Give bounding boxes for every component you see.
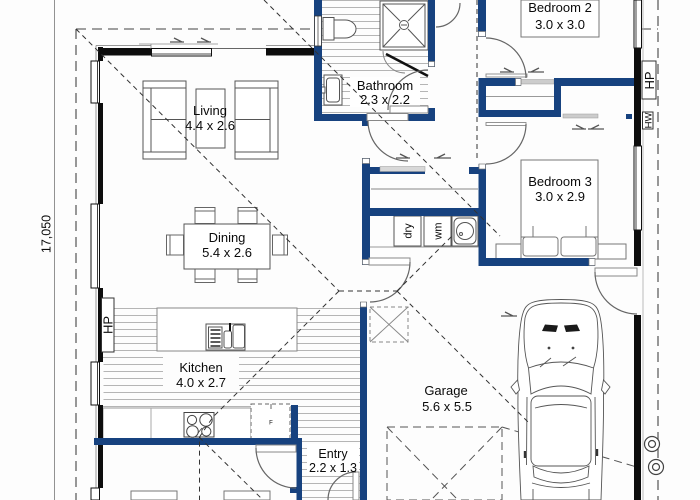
svg-text:Bedroom 3: Bedroom 3: [528, 174, 592, 189]
svg-text:3.0 x 3.0: 3.0 x 3.0: [535, 17, 585, 32]
svg-text:Entry: Entry: [318, 447, 348, 461]
svg-text:HP: HP: [101, 316, 116, 334]
svg-text:4.0 x 2.7: 4.0 x 2.7: [176, 375, 226, 390]
svg-text:2.3 x 2.2: 2.3 x 2.2: [360, 92, 410, 107]
svg-text:Bathroom: Bathroom: [357, 78, 413, 93]
svg-text:4.4 x 2.6: 4.4 x 2.6: [185, 118, 235, 133]
svg-text:5.4 x 2.6: 5.4 x 2.6: [202, 245, 252, 260]
svg-text:Dining: Dining: [209, 230, 246, 245]
svg-text:Garage: Garage: [424, 383, 467, 398]
svg-text:HP: HP: [642, 71, 657, 89]
svg-text:F: F: [269, 421, 273, 427]
svg-text:HW: HW: [644, 113, 655, 129]
svg-text:wm: wm: [433, 222, 445, 240]
svg-text:3.0 x 2.9: 3.0 x 2.9: [535, 189, 585, 204]
svg-text:dry: dry: [403, 223, 415, 239]
svg-text:17,050: 17,050: [40, 215, 54, 253]
svg-text:Kitchen: Kitchen: [179, 360, 222, 375]
svg-text:5.6 x 5.5: 5.6 x 5.5: [422, 399, 472, 414]
svg-text:Bedroom 2: Bedroom 2: [528, 0, 592, 15]
svg-text:Living: Living: [193, 103, 227, 118]
svg-text:2.2 x 1.3: 2.2 x 1.3: [309, 461, 357, 475]
